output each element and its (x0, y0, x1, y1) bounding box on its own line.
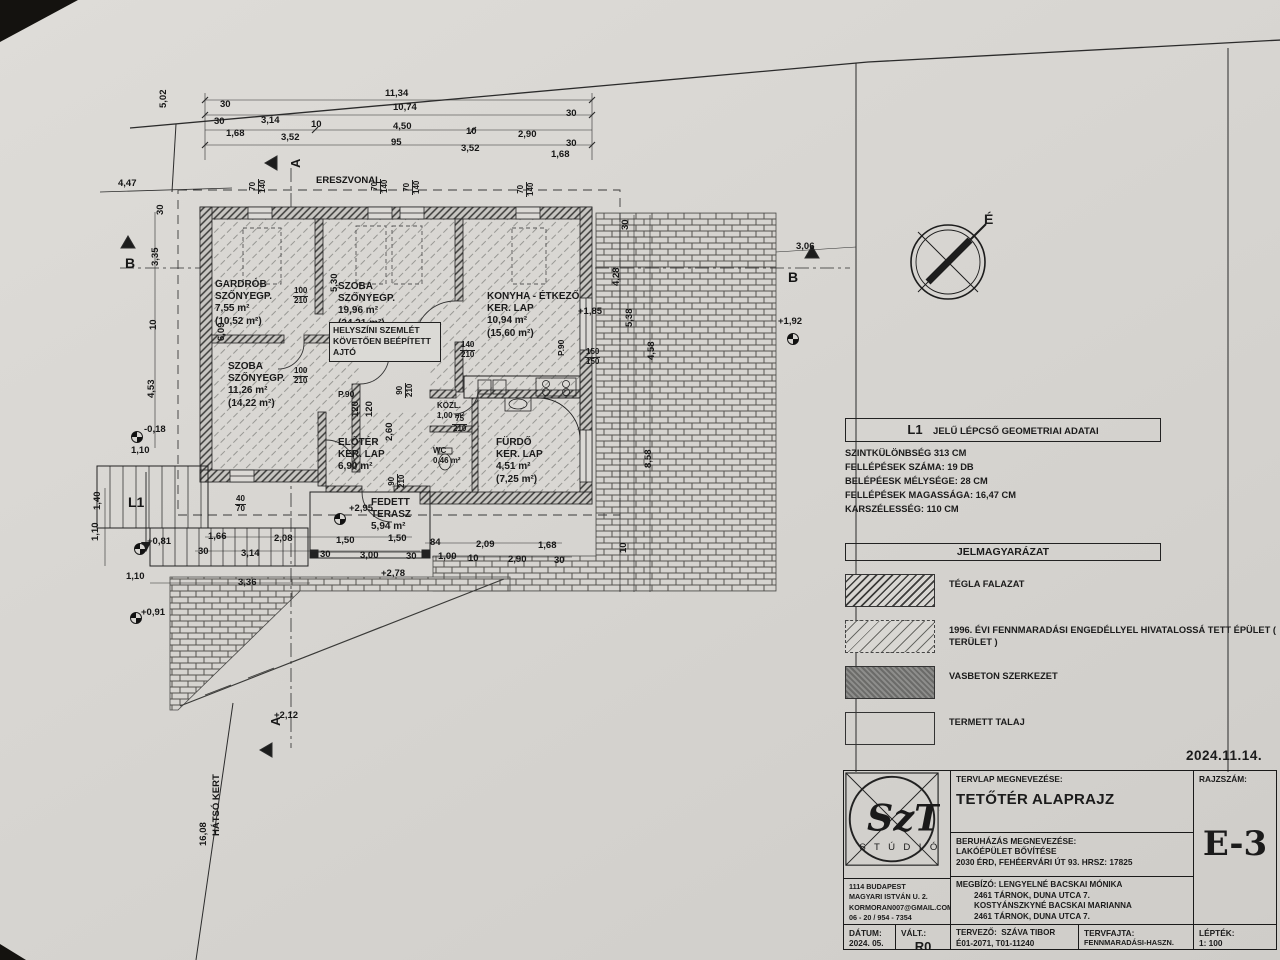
plan-annotation: B (788, 269, 798, 285)
dimension-label: 1,00 (438, 551, 457, 562)
dimension-label: 6,09 (216, 323, 227, 342)
room-label: ELŐTÉR KER. LAP 6,90 m² (338, 437, 385, 474)
opening-size-label: 140 210 (460, 341, 475, 360)
designer-cell: TERVEZŐ: SZÁVA TIBOR É01-2071, T01-11240 (951, 925, 1079, 949)
title-block: SzT S T Ú D I Ó 1114 BUDAPEST MAGYARI IS… (843, 770, 1277, 950)
revision-date: 2024.11.14. (1186, 748, 1262, 763)
legend-swatch (845, 620, 935, 653)
project-address: 2030 ÉRD, FEHÉERVÁRI ÚT 93. HRSZ: 17825 (956, 857, 1188, 868)
dimension-label: 30 (406, 551, 417, 562)
dimension-label: 2,60 (384, 423, 395, 442)
legend: JELMAGYARÁZAT TÉGLA FALAZAT 1996. ÉVI FE… (845, 543, 1277, 745)
office-address: 1114 BUDAPEST MAGYARI ISTVÁN U. 2. KORMO… (849, 882, 945, 924)
dimension-label: 10 (468, 553, 479, 564)
dimension-label: 30 (320, 549, 331, 560)
plan-annotation: P.90 (556, 340, 566, 356)
dimension-label: 4,50 (393, 121, 412, 132)
plan-type-cell: TERVFAJTA: FENNMARADÁSI-HASZN. (1079, 925, 1194, 949)
dimension-label: 84 (430, 537, 441, 548)
legend-item: TERMETT TALAJ (845, 712, 1277, 745)
dimension-label: 30 (155, 204, 166, 215)
dimension-label: 1,68 (551, 149, 570, 160)
level-label: +0,91 (141, 607, 165, 618)
dimension-label: 5,02 (158, 90, 169, 109)
plan-annotation: A (268, 717, 283, 726)
plan-type-label: TERVFAJTA: (1084, 928, 1188, 938)
dimension-label: 1,10 (131, 445, 150, 456)
opening-size-label: 100 210 (293, 287, 308, 306)
stair-table-header: L1 JELŰ LÉPCSŐ GEOMETRIAI ADATAI (845, 418, 1161, 442)
legend-item: VASBETON SZERKEZET (845, 666, 1277, 699)
opening-size-label: 75 210 (452, 415, 467, 434)
dimension-label: 3,14 (241, 548, 260, 559)
legend-label: 1996. ÉVI FENNMARADÁSI ENGEDÉLLYEL HIVAT… (949, 624, 1277, 648)
plan-type: FENNMARADÁSI-HASZN. (1084, 938, 1188, 948)
dimension-label: 30 (566, 138, 577, 149)
drawing-number-cell: RAJZSZÁM: E-3 (1194, 771, 1276, 925)
dimension-label: 1,68 (226, 128, 245, 139)
dimension-label: 2,90 (518, 129, 537, 140)
plan-annotation: P.90 (338, 389, 354, 399)
dimension-label: 2,09 (476, 539, 495, 550)
opening-size-label: 40 70 (235, 495, 246, 514)
legend-item: TÉGLA FALAZAT (845, 574, 1277, 607)
room-label: GARDRÓB SZŐNYEGP. 7,55 m² (10,52 m²) (215, 279, 272, 328)
dimension-label: 120 (364, 401, 375, 417)
dimension-label: 30 (620, 219, 631, 230)
dimension-label: 4,47 (118, 178, 137, 189)
room-label: KONYHA - ÉTKEZŐ KER. LAP 10,94 m² (15,60… (487, 291, 579, 340)
plan-annotation: ERESZVONAL (316, 175, 381, 186)
site-note-box: HELYSZÍNI SZEMLÉT KÖVETŐEN BEÉPÍTETT AJT… (329, 322, 441, 362)
stair-code: L1 (907, 422, 922, 437)
room-label: SZOBA SZŐNYEGP. 11,26 m² (14,22 m²) (228, 361, 285, 410)
opening-size-label: 70 140 (517, 182, 536, 197)
stair-table-row: SZINTKÜLÖNBSÉG 313 CM (845, 447, 1161, 461)
dimension-label: 3,35 (150, 248, 161, 267)
revision-value: R0 (901, 939, 945, 949)
dimension-label: 8,58 (643, 450, 654, 469)
dimension-label: 4,53 (146, 380, 157, 399)
dimension-label: 3,36 (238, 577, 257, 588)
scale-label: LÉPTÉK: (1199, 928, 1271, 938)
plan-annotation: A (288, 159, 303, 168)
sheet-name-label: TERVLAP MEGNEVEZÉSE: (956, 774, 1188, 784)
legend-swatch (845, 574, 935, 607)
stair-table-row: FELLÉPÉSEK MAGASSÁGA: 16,47 CM (845, 489, 1161, 503)
dimension-label: 1,10 (90, 523, 101, 542)
dimension-label: 1,10 (126, 571, 145, 582)
dimension-label: 30 (220, 99, 231, 110)
legend-label: TÉGLA FALAZAT (949, 578, 1024, 590)
dimension-label: 5,30 (329, 274, 340, 293)
dimension-label: 2,08 (274, 533, 293, 544)
drawing-number-label: RAJZSZÁM: (1199, 774, 1271, 784)
dimension-label: 1,66 (208, 531, 227, 542)
level-label: +1,85 (578, 306, 602, 317)
dimension-label: 30 (198, 546, 209, 557)
opening-size-label: 90 210 (396, 383, 415, 398)
drawing-number: E-3 (1199, 824, 1271, 864)
dimension-label: 1,40 (92, 492, 103, 511)
plan-annotation: L1 (128, 494, 144, 510)
opening-size-label: 70 140 (249, 179, 268, 194)
dimension-label: 10 (466, 126, 477, 137)
dimension-label: 3,14 (261, 115, 280, 126)
room-label: WC 0,46 m² (433, 446, 461, 466)
date-cell: DÁTUM: 2024. 05. (844, 925, 896, 949)
dimension-label: 2,90 (508, 554, 527, 565)
dimension-label: 95 (391, 137, 402, 148)
scale-value: 1: 100 (1199, 938, 1271, 949)
project-label: BERUHÁZÁS MEGNEVEZÉSE: (956, 836, 1188, 846)
dimension-label: 30 (214, 116, 225, 127)
dimension-label: 3,00 (360, 550, 379, 561)
dimension-label: 1,50 (336, 535, 355, 546)
level-label: +2,95 (349, 503, 373, 514)
stair-table-row: FELLÉPÉSEK SZÁMA: 19 DB (845, 461, 1161, 475)
opening-size-label: 100 210 (293, 367, 308, 386)
project-cell: BERUHÁZÁS MEGNEVEZÉSE: LAKÓÉPÜLET BŐVÍTÉ… (951, 833, 1194, 877)
revision-label: VÁLT.: (901, 928, 945, 938)
north-compass-icon: É (911, 211, 993, 299)
plan-annotation: HÁTSÓ KERT (211, 774, 222, 836)
logo-sub: S T Ú D I Ó (859, 842, 940, 853)
legend-item: 1996. ÉVI FENNMARADÁSI ENGEDÉLLYEL HIVAT… (845, 620, 1277, 653)
dimension-label: 10 (618, 542, 629, 553)
level-label: +0,81 (147, 536, 171, 547)
legend-swatch (845, 666, 935, 699)
legend-swatch (845, 712, 935, 745)
stair-table-row: KARSZÉLESSÉG: 110 CM (845, 503, 1161, 517)
logo-cell: SzT S T Ú D I Ó (844, 771, 951, 879)
sheet-name: TETŐTÉR ALAPRAJZ (956, 791, 1188, 808)
legend-title: JELMAGYARÁZAT (845, 543, 1161, 561)
dimension-label: 3,52 (281, 132, 300, 143)
plan-annotation: B (125, 255, 135, 271)
logo-main: SzT (867, 797, 940, 840)
dimension-label: 3,52 (461, 143, 480, 154)
room-label: FEDETT TERASZ 5,94 m² (371, 497, 411, 534)
opening-size-label: 90 210 (388, 474, 407, 489)
drawing-sheet: É GARDRÓB SZŐNYEGP. 7,55 m² (10,52 m²)SZ… (0, 0, 1280, 960)
dimension-label: 11,34 (385, 88, 408, 99)
designer-info: TERVEZŐ: SZÁVA TIBOR É01-2071, T01-11240 (956, 928, 1073, 949)
north-label: É (984, 211, 993, 227)
room-label: FÜRDŐ KER. LAP 4,51 m² (7,25 m²) (496, 437, 543, 486)
dimension-label: 4,28 (611, 268, 622, 287)
sheet-name-cell: TERVLAP MEGNEVEZÉSE: TETŐTÉR ALAPRAJZ (951, 771, 1194, 833)
scale-cell: LÉPTÉK: 1: 100 (1194, 925, 1276, 949)
office-address-cell: 1114 BUDAPEST MAGYARI ISTVÁN U. 2. KORMO… (844, 879, 951, 925)
opening-size-label: 150 150 (585, 348, 600, 367)
level-label: -0,18 (144, 424, 166, 435)
project-name: LAKÓÉPÜLET BŐVÍTÉSE (956, 846, 1188, 857)
dimension-label: 1,50 (388, 533, 407, 544)
opening-size-label: 70 140 (403, 180, 422, 195)
szt-studio-logo: SzT S T Ú D I Ó (844, 771, 940, 871)
date-label: DÁTUM: (849, 928, 890, 938)
dimension-label: 5,38 (624, 309, 635, 328)
dimension-label: 1,68 (538, 540, 557, 551)
dimension-label: 30 (554, 555, 565, 566)
dimension-label: 120 (350, 401, 361, 417)
revision-cell: VÁLT.: R0 (896, 925, 951, 949)
date-value: 2024. 05. (849, 938, 890, 949)
legend-label: VASBETON SZERKEZET (949, 670, 1058, 682)
level-label: +1,92 (778, 316, 802, 327)
dimension-label: 10 (148, 319, 159, 330)
dimension-label: 4,58 (646, 342, 657, 361)
stair-table-title: JELŰ LÉPCSŐ GEOMETRIAI ADATAI (933, 426, 1099, 437)
legend-label: TERMETT TALAJ (949, 716, 1025, 728)
dimension-label: 30 (566, 108, 577, 119)
dimension-label: 16,08 (198, 822, 209, 846)
level-label: +2,78 (381, 568, 405, 579)
dimension-label: 10,74 (393, 102, 417, 113)
dimension-label: 10 (311, 119, 322, 130)
stair-geometry-table: L1 JELŰ LÉPCSŐ GEOMETRIAI ADATAI SZINTKÜ… (845, 418, 1161, 517)
stair-table-row: BELÉPÉESK MÉLYSÉGE: 28 CM (845, 475, 1161, 489)
client-info: MEGBÍZÓ: LENGYELNÉ BACSKAI MÓNIKA 2461 T… (956, 880, 1188, 922)
client-cell: MEGBÍZÓ: LENGYELNÉ BACSKAI MÓNIKA 2461 T… (951, 877, 1194, 925)
dimension-label: 3,06 (796, 241, 815, 252)
